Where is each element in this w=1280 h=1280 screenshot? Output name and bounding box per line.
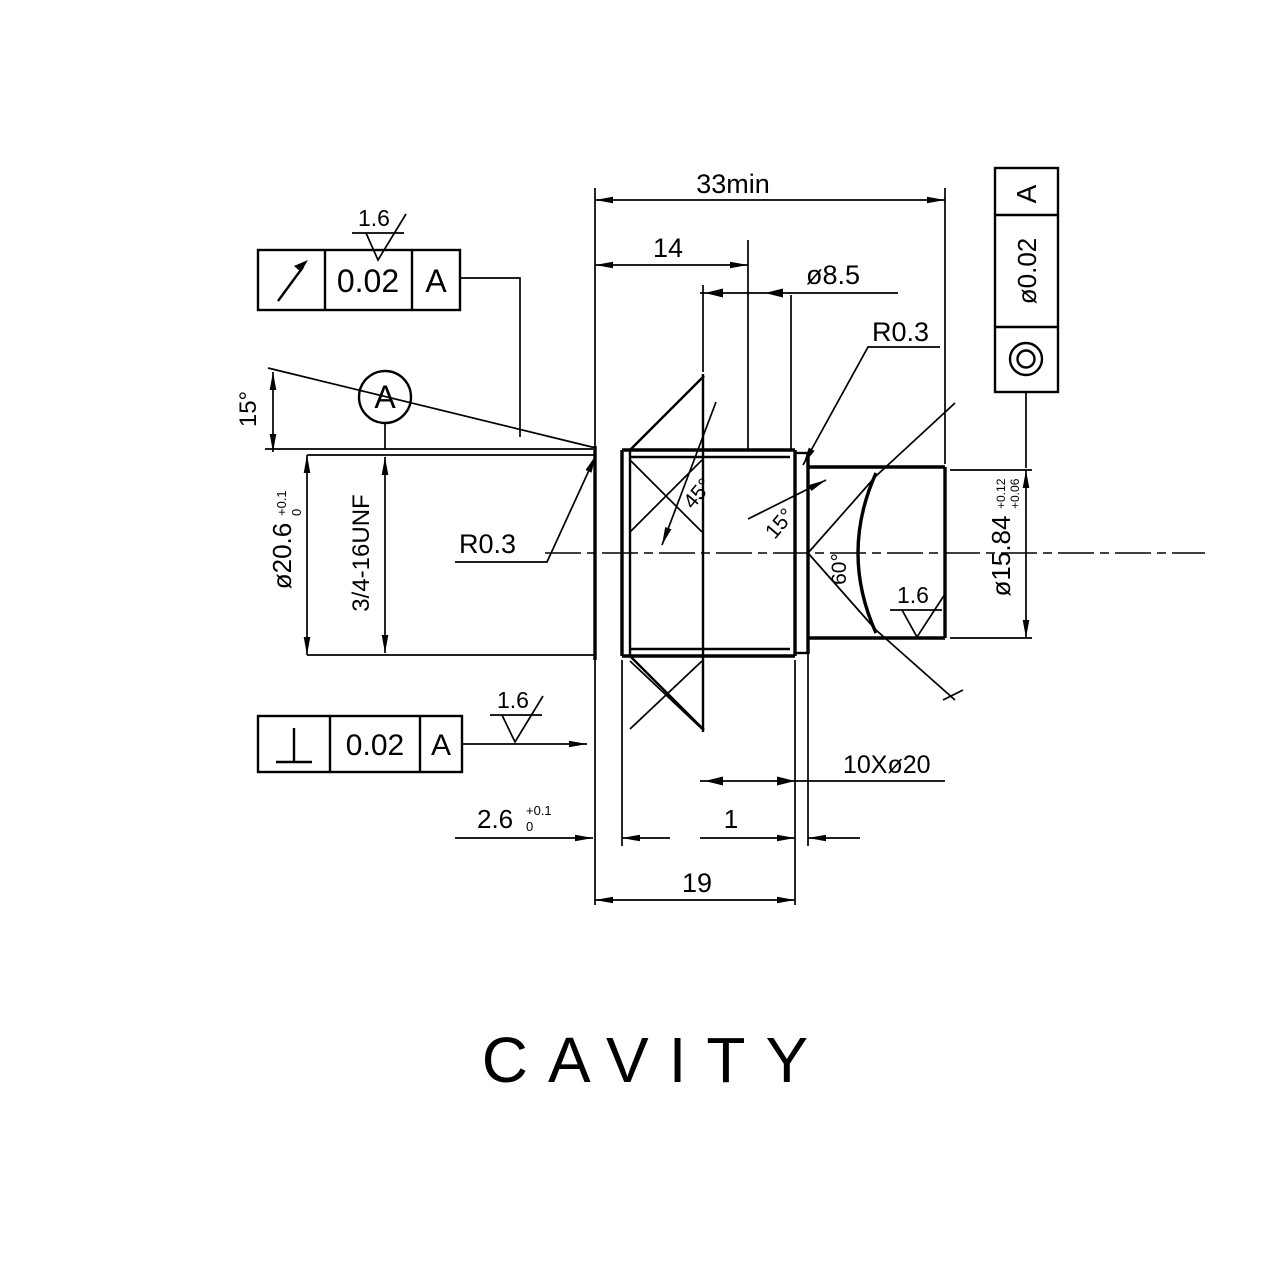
cavity-drawing: 33min 14 ø8.5 R0.3 R0.3 15° A ø20.6 +0. (0, 0, 1280, 1280)
dim-overall-length: 33min (595, 169, 945, 200)
dim-chamfer-angle: 45° (662, 402, 717, 545)
dim-relief-tol-up: +0.1 (526, 803, 552, 818)
surface-finish-top: 1.6 (352, 205, 406, 260)
dim-bore-tol-lo: +0.06 (1008, 478, 1022, 509)
dim-relief-tol-lo: 0 (526, 819, 533, 834)
dim-radius-left-text: R0.3 (459, 529, 516, 559)
datum-a-label: A (374, 379, 396, 415)
concentricity-icon (1010, 343, 1042, 375)
fcf-runout-leader (460, 278, 520, 437)
dim-pilot-hole-text: ø8.5 (806, 260, 860, 290)
dim-thread-minor-tol-up: +0.1 (274, 490, 289, 516)
circular-runout-icon (278, 260, 308, 301)
dim-seat-angle-small: 15° (748, 480, 826, 543)
surface-finish-inner: 1.6 (890, 582, 945, 637)
dim-bore-dia-text: ø15.84 (986, 516, 1016, 597)
dim-angle-left: 15° (235, 372, 273, 452)
perpendicularity-icon (276, 728, 312, 762)
dim-thread-minor-text: ø20.6 (267, 523, 297, 590)
dim-groove-width-text: 1 (724, 804, 738, 834)
surface-finish-bottom: 1.6 (490, 687, 543, 742)
dim-bore-depth-text: 19 (682, 868, 712, 898)
surface-finish-inner-value: 1.6 (897, 582, 929, 608)
dim-radius-right-text: R0.3 (872, 317, 929, 347)
datum-a: A (359, 371, 411, 449)
fcf-runout-datum: A (425, 263, 447, 299)
dim-relief-width-text: 2.6 (477, 804, 513, 834)
surface-finish-bottom-value: 1.6 (497, 687, 529, 713)
dim-relief-width: 2.6 +0.1 0 (455, 803, 670, 838)
dim-bore-dia: ø15.84 +0.12 +0.06 (986, 470, 1026, 638)
drawing-title: CAVITY (482, 1024, 828, 1096)
dim-thread-depth: 14 (595, 233, 748, 265)
fcf-perpendicularity: 0.02 A (258, 716, 587, 772)
dim-thread-minor-tol-lo: 0 (289, 509, 304, 516)
fcf-runout-value: 0.02 (337, 263, 399, 299)
surface-finish-top-value: 1.6 (358, 205, 390, 231)
dim-seat-angle-cone-text: 60° (828, 553, 851, 585)
dim-seat-angle-cone: 60° (828, 553, 851, 585)
fcf-conc-value: ø0.02 (1012, 238, 1042, 305)
dim-overall-length-text: 33min (696, 169, 770, 199)
drawing-sheet: 33min 14 ø8.5 R0.3 R0.3 15° A ø20.6 +0. (0, 0, 1280, 1280)
fcf-perp-datum: A (431, 729, 451, 762)
dim-thread-spec-text: 3/4-16UNF (348, 494, 375, 611)
fcf-perp-value: 0.02 (346, 729, 404, 762)
dim-thread-depth-text: 14 (653, 233, 683, 263)
dim-radius-right: R0.3 (803, 317, 940, 465)
dim-bore-tol-up: +0.12 (994, 478, 1008, 509)
dim-groove-callout-text: 10Xø20 (843, 751, 931, 779)
dim-thread-minor: ø20.6 +0.1 0 (267, 455, 307, 655)
dim-radius-left: R0.3 (455, 455, 596, 562)
dim-thread-spec: 3/4-16UNF (348, 457, 385, 653)
dim-bore-depth: 19 (595, 868, 795, 900)
fcf-concentricity: A ø0.02 (995, 168, 1058, 468)
dim-angle-left-text: 15° (235, 391, 262, 427)
dim-chamfer-angle-text: 45° (679, 474, 717, 513)
dim-groove-width: 1 (700, 804, 860, 838)
dim-groove-callout: 10Xø20 (700, 751, 945, 786)
fcf-conc-datum: A (1011, 184, 1042, 203)
